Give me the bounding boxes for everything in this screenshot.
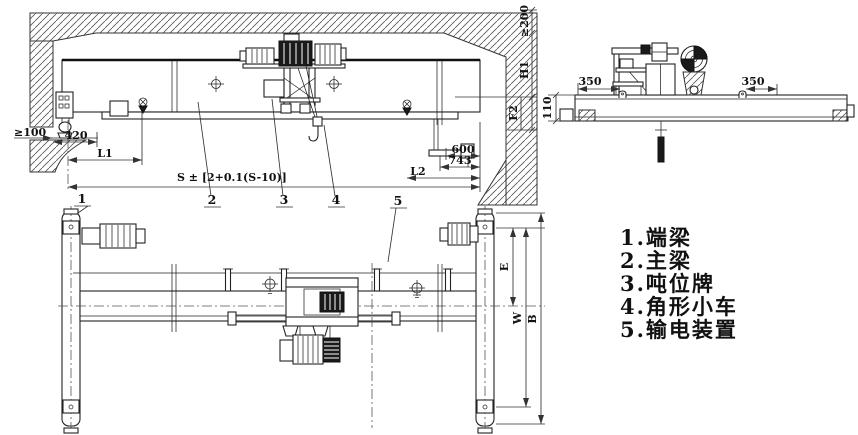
end-view: 350 350 110	[541, 43, 854, 162]
dim-l2-label: L2	[410, 165, 425, 178]
legend-item-main-girder: 2.主梁	[620, 248, 692, 273]
svg-text:1: 1	[78, 191, 87, 206]
svg-text:5: 5	[394, 193, 403, 208]
legend-item-power-supply: 5.输电装置	[620, 317, 738, 342]
dim-110-label: 110	[541, 96, 554, 119]
trolley-end-view	[612, 43, 707, 95]
travel-drive-motor-right	[440, 223, 478, 245]
floor-hatch	[30, 140, 86, 172]
trolley-wheel	[300, 104, 310, 113]
legend-item-angular-trolley: 4.角形小车	[620, 294, 738, 319]
dim-b-label: B	[526, 314, 539, 323]
dim-350-right-label: 350	[742, 75, 765, 88]
bottom-flange-rail	[102, 112, 458, 119]
name-plate	[110, 101, 128, 116]
callout-5-power-supply: 5	[388, 193, 407, 262]
buffer-stop-left	[619, 91, 626, 98]
dim-e-label: E	[498, 263, 511, 271]
legend: 1.端梁 2.主梁 3.吨位牌 4.角形小车 5.输电装置	[620, 225, 738, 342]
svg-text:4: 4	[332, 192, 341, 207]
hook-end-view	[655, 121, 667, 162]
dim-side-clearance-label: ≥100	[14, 126, 47, 139]
hook-elevation	[309, 117, 322, 141]
rail-clamp-right	[833, 110, 848, 121]
trolley-wheel	[281, 104, 291, 113]
dim-w-label: W	[511, 311, 524, 325]
left-wall-hatch	[30, 41, 53, 127]
main-girder-elevation	[62, 60, 480, 125]
girder-section-end-view	[560, 91, 854, 121]
dim-span-label: S ± [2+0.1(S-10)]	[177, 171, 287, 184]
hoist-motor	[315, 44, 341, 65]
buffer-stop-right	[739, 91, 746, 98]
dim-420-label: 420	[65, 129, 88, 142]
dim-350-left-label: 350	[579, 75, 602, 88]
drawing-canvas: ≥100 420 L1 S ± [2+0.1(S-10)] 600 743 L2	[0, 0, 858, 435]
plan-view: E W B	[58, 206, 545, 433]
corner-hatch-wedge	[478, 160, 506, 205]
svg-text:2: 2	[208, 192, 217, 207]
dim-f2-label: F2	[507, 105, 520, 120]
cable-drum-wheel	[681, 46, 707, 72]
dim-l1-label: L1	[97, 147, 112, 160]
tonnage-plate	[264, 80, 284, 97]
travel-drive-motor-left	[82, 224, 145, 248]
rail-clamp-left	[579, 110, 595, 121]
dim-top-clearance-label: ≥200	[518, 5, 531, 38]
dim-h1-label: H1	[518, 61, 531, 79]
legend-item-end-beam: 1.端梁	[620, 225, 692, 250]
callout-4-angular-trolley: 4	[324, 125, 345, 207]
svg-text:3: 3	[280, 192, 289, 207]
crane-outline-drawing: ≥100 420 L1 S ± [2+0.1(S-10)] 600 743 L2	[0, 0, 858, 435]
dim-743-label: 743	[449, 154, 472, 167]
dimensions-plan: E W B	[496, 213, 545, 424]
legend-item-tonnage-plate: 3.吨位牌	[620, 271, 715, 296]
travel-motor	[246, 48, 274, 64]
